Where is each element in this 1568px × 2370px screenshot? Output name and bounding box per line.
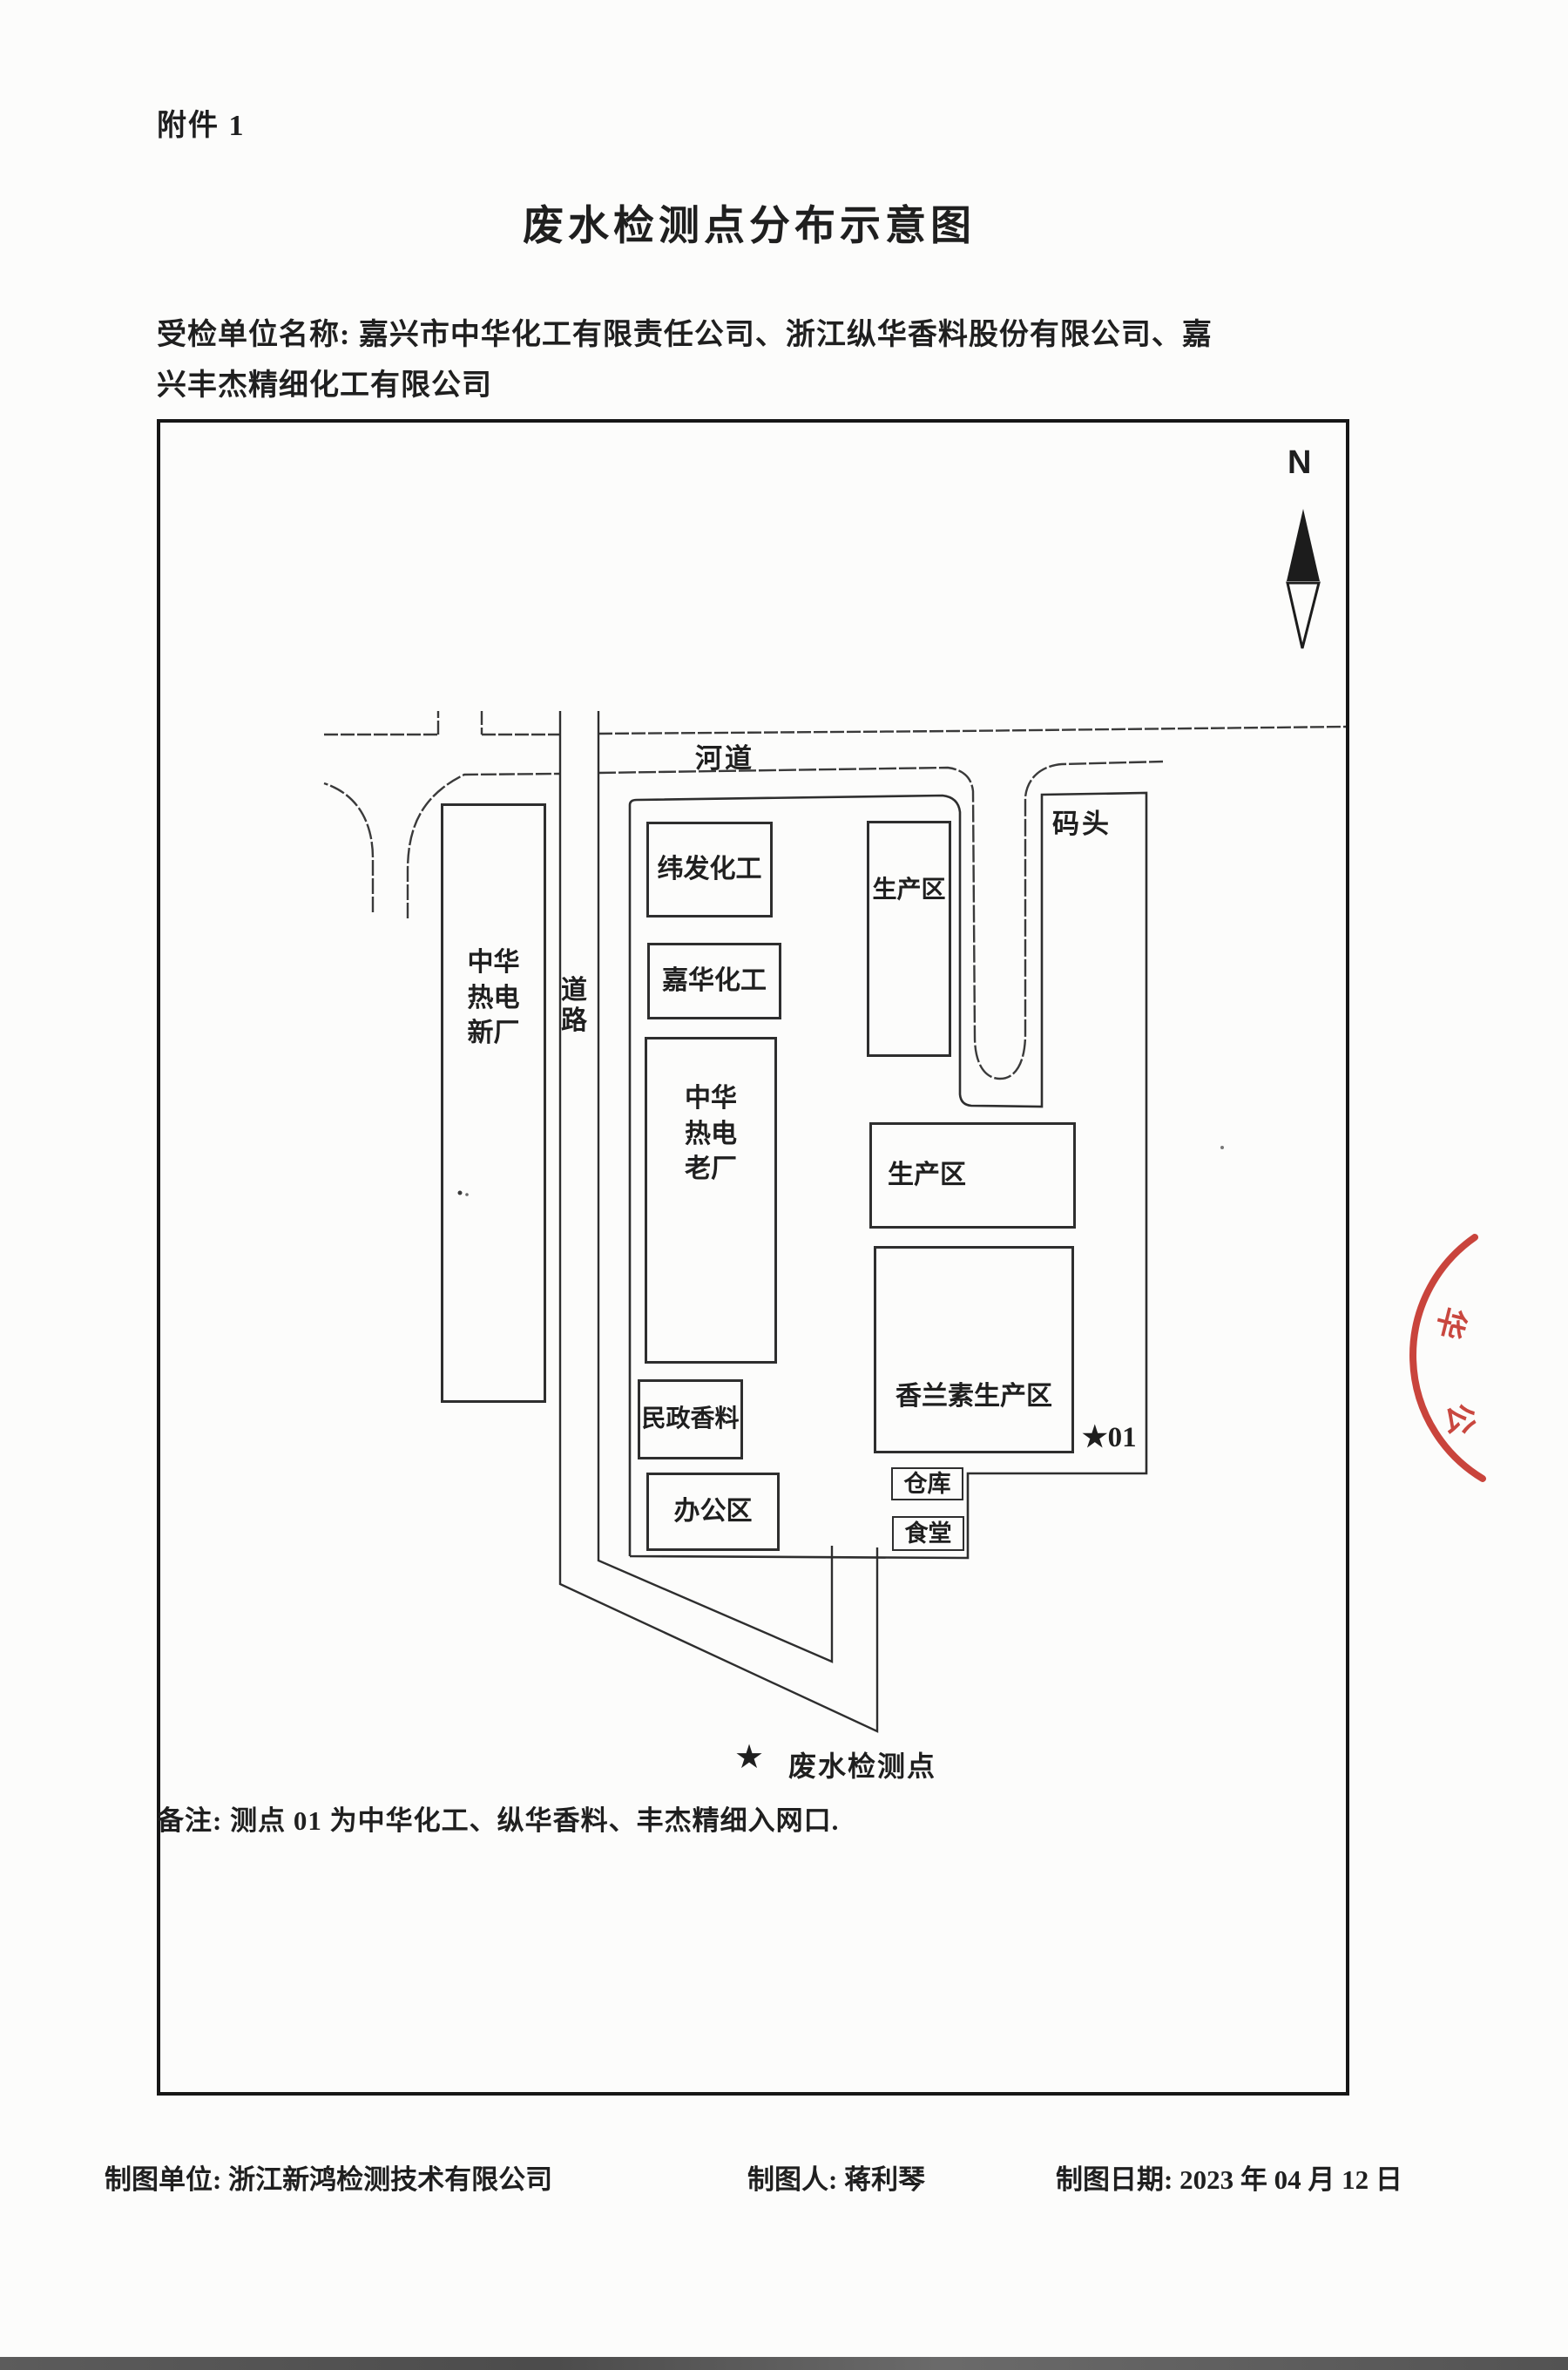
- site-map-drawing: 华 公: [0, 0, 1568, 2370]
- river-top-line: [324, 711, 1346, 735]
- river-label: 河道: [695, 736, 754, 775]
- building-warehouse: 仓库: [891, 1467, 963, 1500]
- building-zhonghua-redian-xinchang: 中华热电新厂: [441, 803, 546, 1403]
- document-page: 华 公 附件 1 废水检测点分布示意图 受检单位名称: 嘉兴市中华化工有限责任公…: [0, 0, 1568, 2370]
- dock-label: 码头: [1052, 802, 1112, 841]
- building-label: 香兰素生产区: [896, 1379, 1052, 1415]
- inspected-units-line2: 兴丰杰精细化工有限公司: [157, 361, 492, 403]
- footer-drafter: 制图人: 蒋利琴: [747, 2157, 925, 2197]
- building-minzheng-xiangliao: 民政香料: [638, 1379, 743, 1459]
- building-label: 食堂: [905, 1518, 952, 1549]
- north-label: N: [1288, 444, 1311, 482]
- building-label: 仓库: [904, 1468, 951, 1500]
- ink-speck: [1220, 1146, 1224, 1149]
- page-title: 废水检测点分布示意图: [523, 192, 976, 252]
- building-production-area-north: 生产区: [867, 821, 951, 1057]
- scan-edge-artifact: [0, 2357, 1568, 2370]
- building-label: 生产区: [888, 1158, 966, 1194]
- building-production-area-mid: 生产区: [869, 1122, 1076, 1229]
- building-label: 办公区: [674, 1494, 753, 1530]
- legend-star-icon: ★: [734, 1737, 764, 1777]
- building-label: 纬发化工: [658, 852, 762, 888]
- footer-drafting-unit: 制图单位: 浙江新鸿检测技术有限公司: [105, 2157, 552, 2197]
- footer-date: 制图日期: 2023 年 04 月 12 日: [1056, 2157, 1402, 2197]
- building-label: 民政香料: [641, 1403, 739, 1436]
- attachment-label: 附件 1: [157, 101, 246, 144]
- building-label: 中华热电新厂: [465, 945, 523, 1052]
- north-arrow-icon: [1287, 509, 1320, 648]
- building-label: 生产区: [872, 874, 945, 907]
- building-vanillin-production-area: 香兰素生产区: [874, 1246, 1074, 1453]
- road-label: 道路: [561, 976, 592, 1036]
- inspected-units-line1: 受检单位名称: 嘉兴市中华化工有限责任公司、浙江纵华香料股份有限公司、嘉: [157, 310, 1213, 353]
- map-note: 备注: 测点 01 为中华化工、纵华香料、丰杰精细入网口.: [157, 1798, 839, 1838]
- building-label: 嘉华化工: [662, 964, 767, 999]
- monitoring-point-star-01: ★01: [1082, 1419, 1137, 1454]
- building-zhonghua-redian-laochang: 中华热电老厂: [645, 1037, 777, 1364]
- building-jiahua-huagong: 嘉华化工: [647, 943, 781, 1019]
- building-weifa-huagong: 纬发化工: [646, 822, 773, 918]
- building-label: 中华热电老厂: [682, 1081, 740, 1188]
- stamp-glyph: 公: [1441, 1402, 1479, 1437]
- legend-label: 废水检测点: [788, 1744, 936, 1784]
- stamp-glyph: 华: [1430, 1303, 1472, 1343]
- red-stamp: 华 公: [1413, 1237, 1483, 1479]
- building-canteen: 食堂: [892, 1516, 964, 1551]
- building-office-area: 办公区: [646, 1473, 780, 1551]
